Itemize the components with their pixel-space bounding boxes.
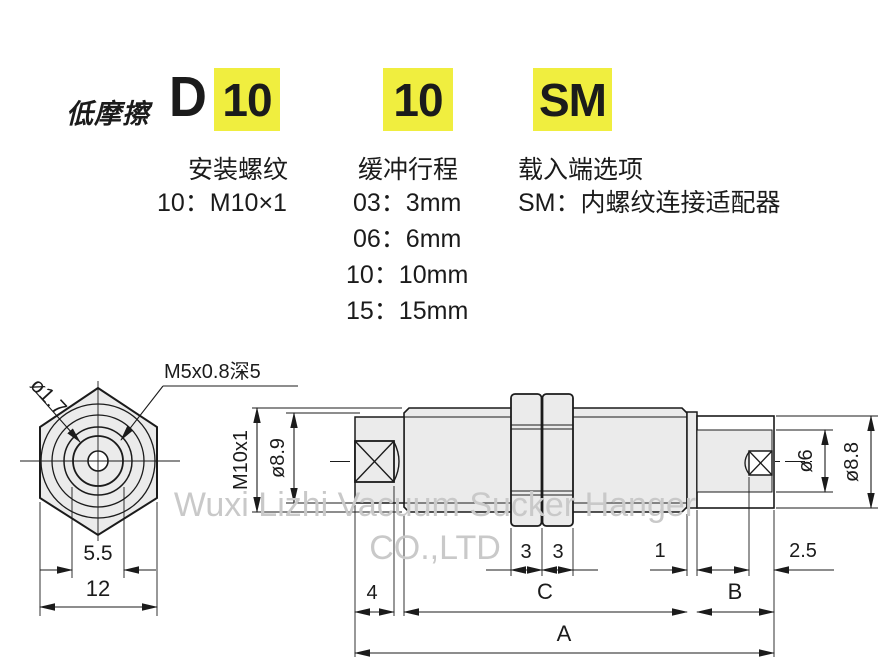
dim-label-mount-thread: M10x1 [230,430,252,490]
dim-label-cap-dia: ø8.8 [841,442,863,482]
dim-label-rod-ext: 4 [366,582,377,604]
dim-label-cap-length: B [728,579,743,604]
dim-label-tip-offset: 2.5 [789,540,817,562]
dim-label-across-flats: 12 [86,576,110,601]
datasheet-page: 低摩擦 D 10 10 SM 安装螺纹 10：M10×1 缓冲行程 03：3mm… [0,0,888,660]
watermark: Wuxi Lizhi Vacuum Sucker Hanger CO.,LTD [150,484,720,570]
watermark-line2: CO.,LTD [150,527,720,570]
dim-label-total-length: A [557,621,572,646]
dim-label-body-dia: ø8.9 [267,438,289,478]
watermark-line1: Wuxi Lizhi Vacuum Sucker Hanger [150,484,720,527]
dim-label-m5-thread: M5x0.8深5 [164,360,261,383]
dim-label-bore-dia: ø6 [795,449,817,472]
dim-label-flats-inner: 5.5 [83,542,112,565]
dim-label-body-length: C [537,579,553,604]
